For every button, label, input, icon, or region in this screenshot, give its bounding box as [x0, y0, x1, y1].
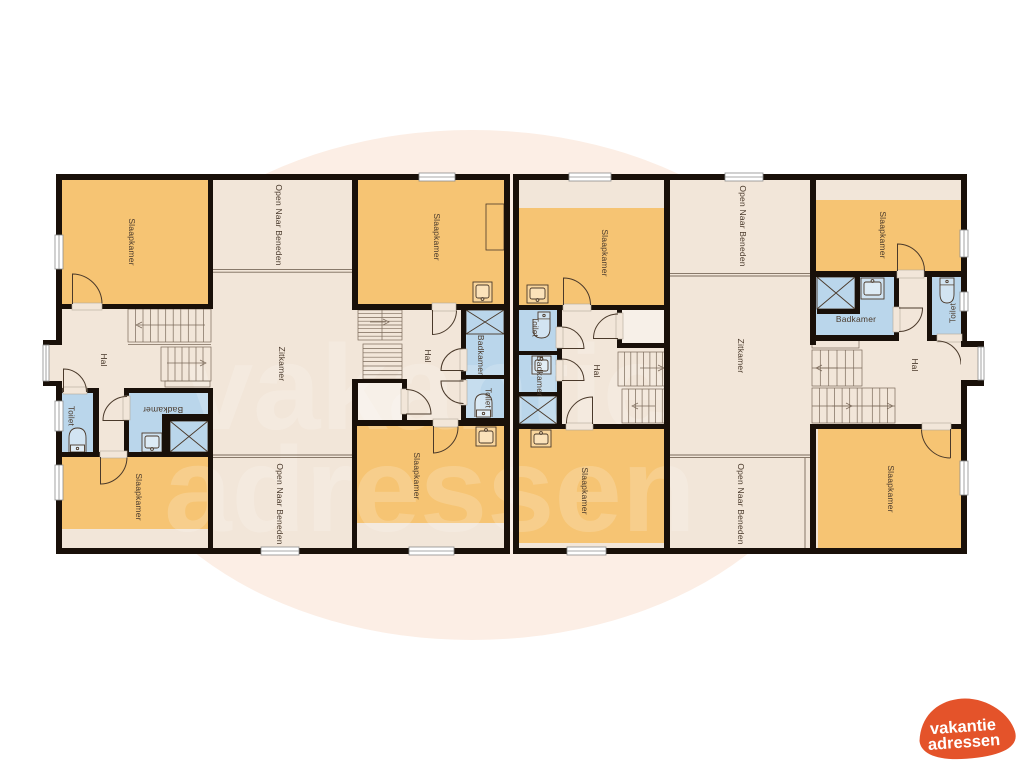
svg-text:Hal: Hal: [910, 358, 920, 371]
svg-text:Hal: Hal: [99, 353, 109, 366]
svg-text:Toilet: Toilet: [949, 302, 958, 322]
svg-text:Open Naar Beneden: Open Naar Beneden: [275, 463, 285, 544]
svg-text:Zitkamer: Zitkamer: [736, 339, 746, 374]
svg-text:Slaapkamer: Slaapkamer: [878, 211, 888, 258]
svg-text:Toilet: Toilet: [67, 406, 76, 426]
svg-text:Open Naar Beneden: Open Naar Beneden: [738, 185, 748, 266]
svg-text:Slaapkamer: Slaapkamer: [127, 218, 137, 265]
svg-text:Slaapkamer: Slaapkamer: [412, 452, 422, 499]
svg-text:Slaapkamer: Slaapkamer: [580, 467, 590, 514]
svg-text:Open Naar Beneden: Open Naar Beneden: [274, 184, 284, 265]
svg-text:Hal: Hal: [592, 364, 602, 377]
svg-text:Hal: Hal: [423, 349, 433, 362]
svg-text:adressen: adressen: [164, 421, 695, 557]
svg-text:Badkamer: Badkamer: [535, 356, 545, 396]
svg-text:Slaapkamer: Slaapkamer: [134, 473, 144, 520]
svg-text:Toilet: Toilet: [484, 388, 493, 408]
svg-text:Badkamer: Badkamer: [836, 314, 876, 324]
svg-text:Badkamer: Badkamer: [143, 405, 183, 415]
svg-text:Toilet: Toilet: [531, 317, 540, 337]
svg-text:Open Naar Beneden: Open Naar Beneden: [736, 463, 746, 544]
svg-text:Slaapkamer: Slaapkamer: [600, 229, 610, 276]
svg-text:Slaapkamer: Slaapkamer: [432, 213, 442, 260]
svg-text:Badkamer: Badkamer: [476, 335, 486, 375]
svg-text:Zitkamer: Zitkamer: [277, 347, 287, 382]
svg-text:Slaapkamer: Slaapkamer: [886, 465, 896, 512]
